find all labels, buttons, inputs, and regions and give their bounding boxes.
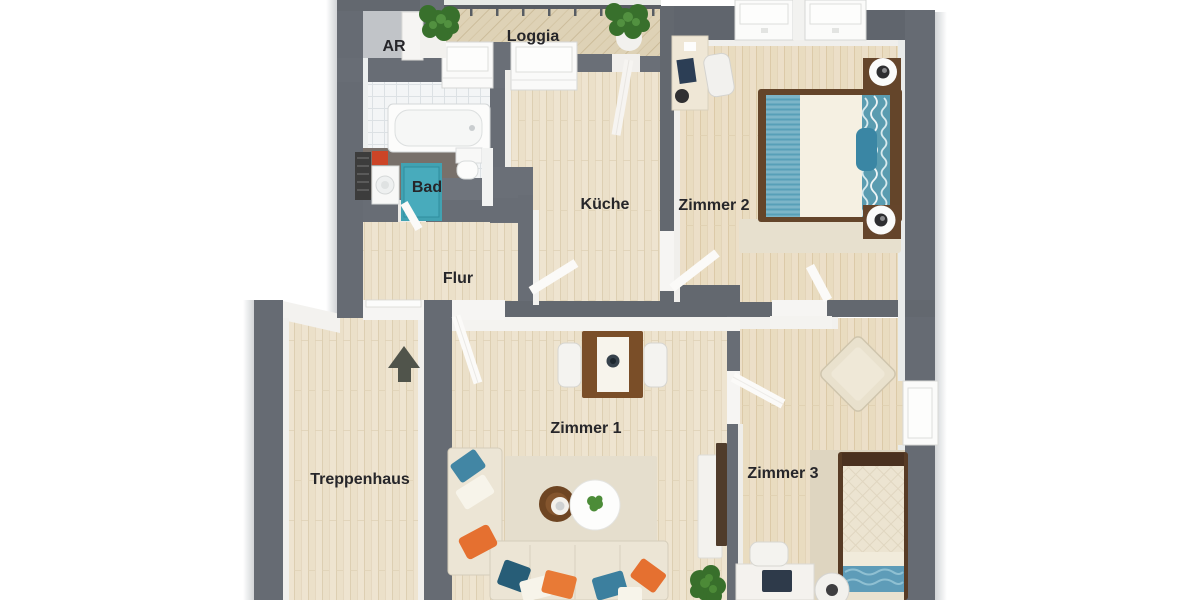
svg-text:Zimmer 3: Zimmer 3 [747,465,818,482]
svg-text:Loggia: Loggia [507,28,560,45]
svg-text:Küche: Küche [581,196,630,213]
svg-text:AR: AR [382,38,406,55]
svg-text:Zimmer 1: Zimmer 1 [550,420,621,437]
svg-text:Flur: Flur [443,270,473,287]
svg-text:Treppenhaus: Treppenhaus [310,471,410,488]
svg-text:Bad: Bad [412,179,442,196]
svg-text:Zimmer 2: Zimmer 2 [678,197,749,214]
